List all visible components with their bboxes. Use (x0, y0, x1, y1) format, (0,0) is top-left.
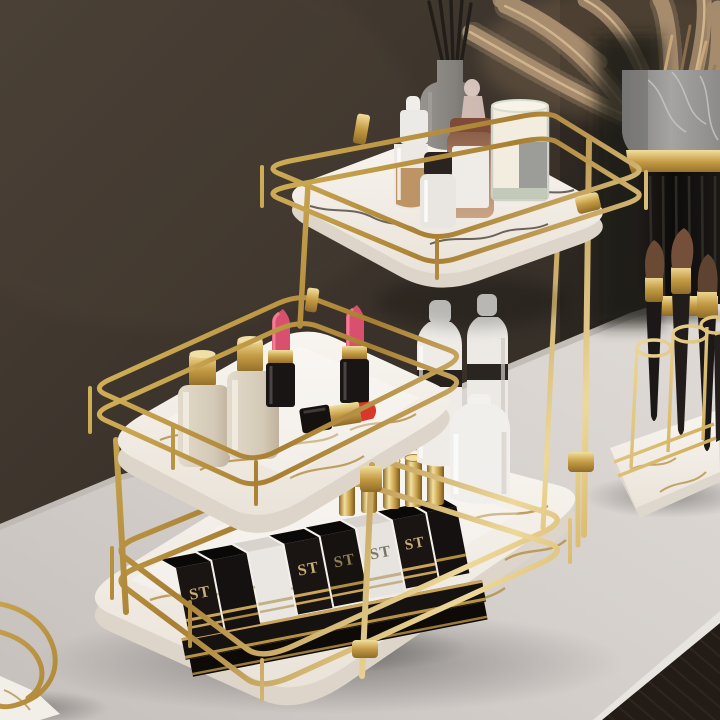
pole-hinge (568, 452, 594, 472)
black-cap-bottle (420, 152, 456, 228)
pole-hinge (360, 466, 382, 492)
product-photo-scene: ST ST ST (0, 0, 720, 720)
pole-foot (352, 640, 378, 658)
top-tray-undershadow (375, 276, 565, 328)
scene-canvas: ST ST ST (0, 0, 720, 720)
